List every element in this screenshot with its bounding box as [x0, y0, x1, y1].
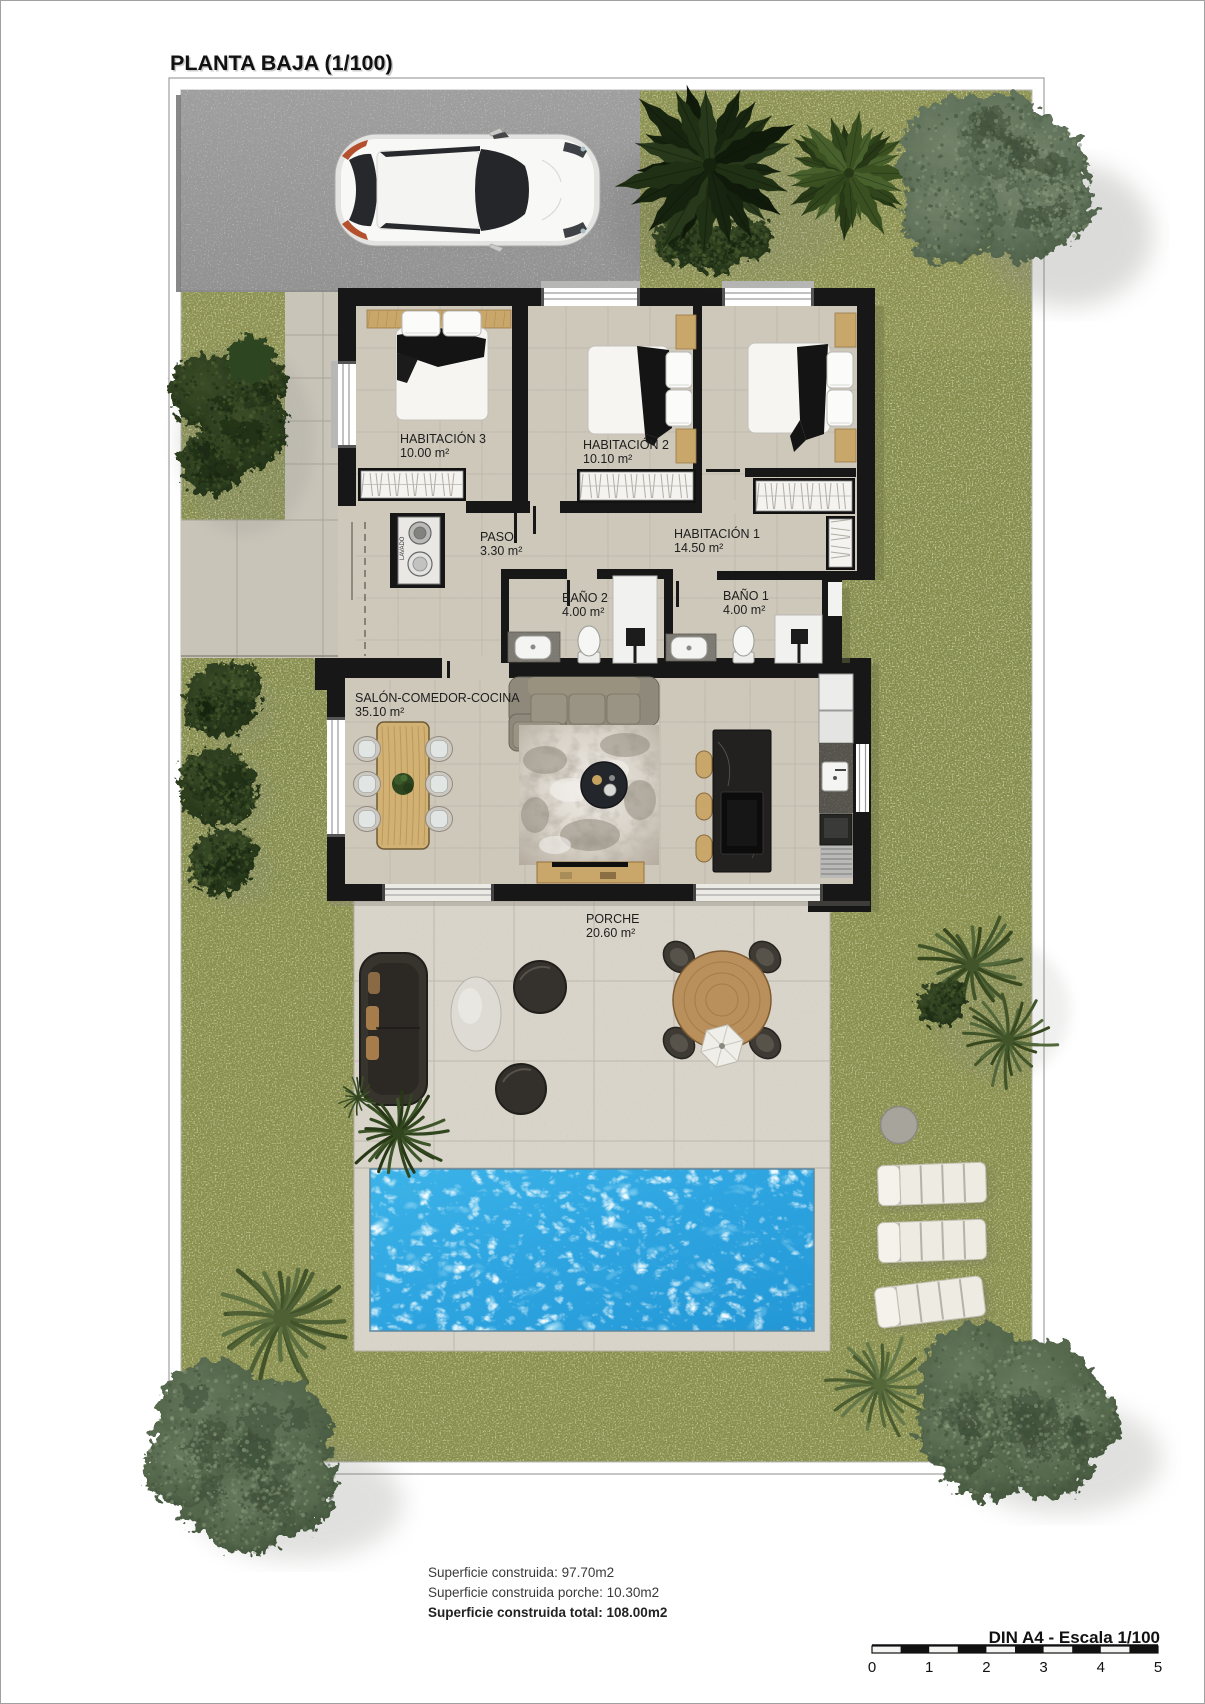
svg-text:3: 3 — [1039, 1659, 1047, 1676]
svg-text:3.30 m²: 3.30 m² — [480, 544, 522, 558]
svg-text:DIN A4 - Escala 1/100: DIN A4 - Escala 1/100 — [989, 1628, 1160, 1647]
svg-text:HABITACIÓN 2: HABITACIÓN 2 — [583, 437, 669, 452]
svg-text:Superficie construida total: 1: Superficie construida total: 108.00m2 — [428, 1605, 667, 1620]
svg-text:2: 2 — [982, 1659, 990, 1676]
svg-text:5: 5 — [1154, 1659, 1162, 1676]
svg-text:10.00 m²: 10.00 m² — [400, 446, 449, 460]
svg-text:1: 1 — [925, 1659, 933, 1676]
svg-text:SALÓN-COMEDOR-COCINA: SALÓN-COMEDOR-COCINA — [355, 690, 520, 705]
svg-text:LAVADO: LAVADO — [400, 536, 406, 560]
svg-text:20.60 m²: 20.60 m² — [586, 926, 635, 940]
svg-text:10.10 m²: 10.10 m² — [583, 452, 632, 466]
svg-text:35.10 m²: 35.10 m² — [355, 705, 404, 719]
svg-text:4.00 m²: 4.00 m² — [562, 605, 604, 619]
svg-text:4: 4 — [1097, 1659, 1105, 1676]
svg-text:PLANTA BAJA (1/100): PLANTA BAJA (1/100) — [170, 51, 393, 75]
svg-text:4.00 m²: 4.00 m² — [723, 603, 765, 617]
svg-text:Superficie construida porche:: Superficie construida porche: 10.30m2 — [428, 1585, 659, 1600]
svg-text:BAÑO 2: BAÑO 2 — [562, 591, 608, 605]
svg-text:BAÑO 1: BAÑO 1 — [723, 589, 769, 603]
svg-text:0: 0 — [868, 1659, 876, 1676]
svg-text:Superficie construida: 97.70m2: Superficie construida: 97.70m2 — [428, 1565, 614, 1580]
svg-text:PORCHE: PORCHE — [586, 912, 639, 926]
svg-text:14.50 m²: 14.50 m² — [674, 541, 723, 555]
svg-text:HABITACIÓN 3: HABITACIÓN 3 — [400, 431, 486, 446]
svg-text:HABITACIÓN 1: HABITACIÓN 1 — [674, 526, 760, 541]
svg-text:PASO: PASO — [480, 530, 514, 544]
